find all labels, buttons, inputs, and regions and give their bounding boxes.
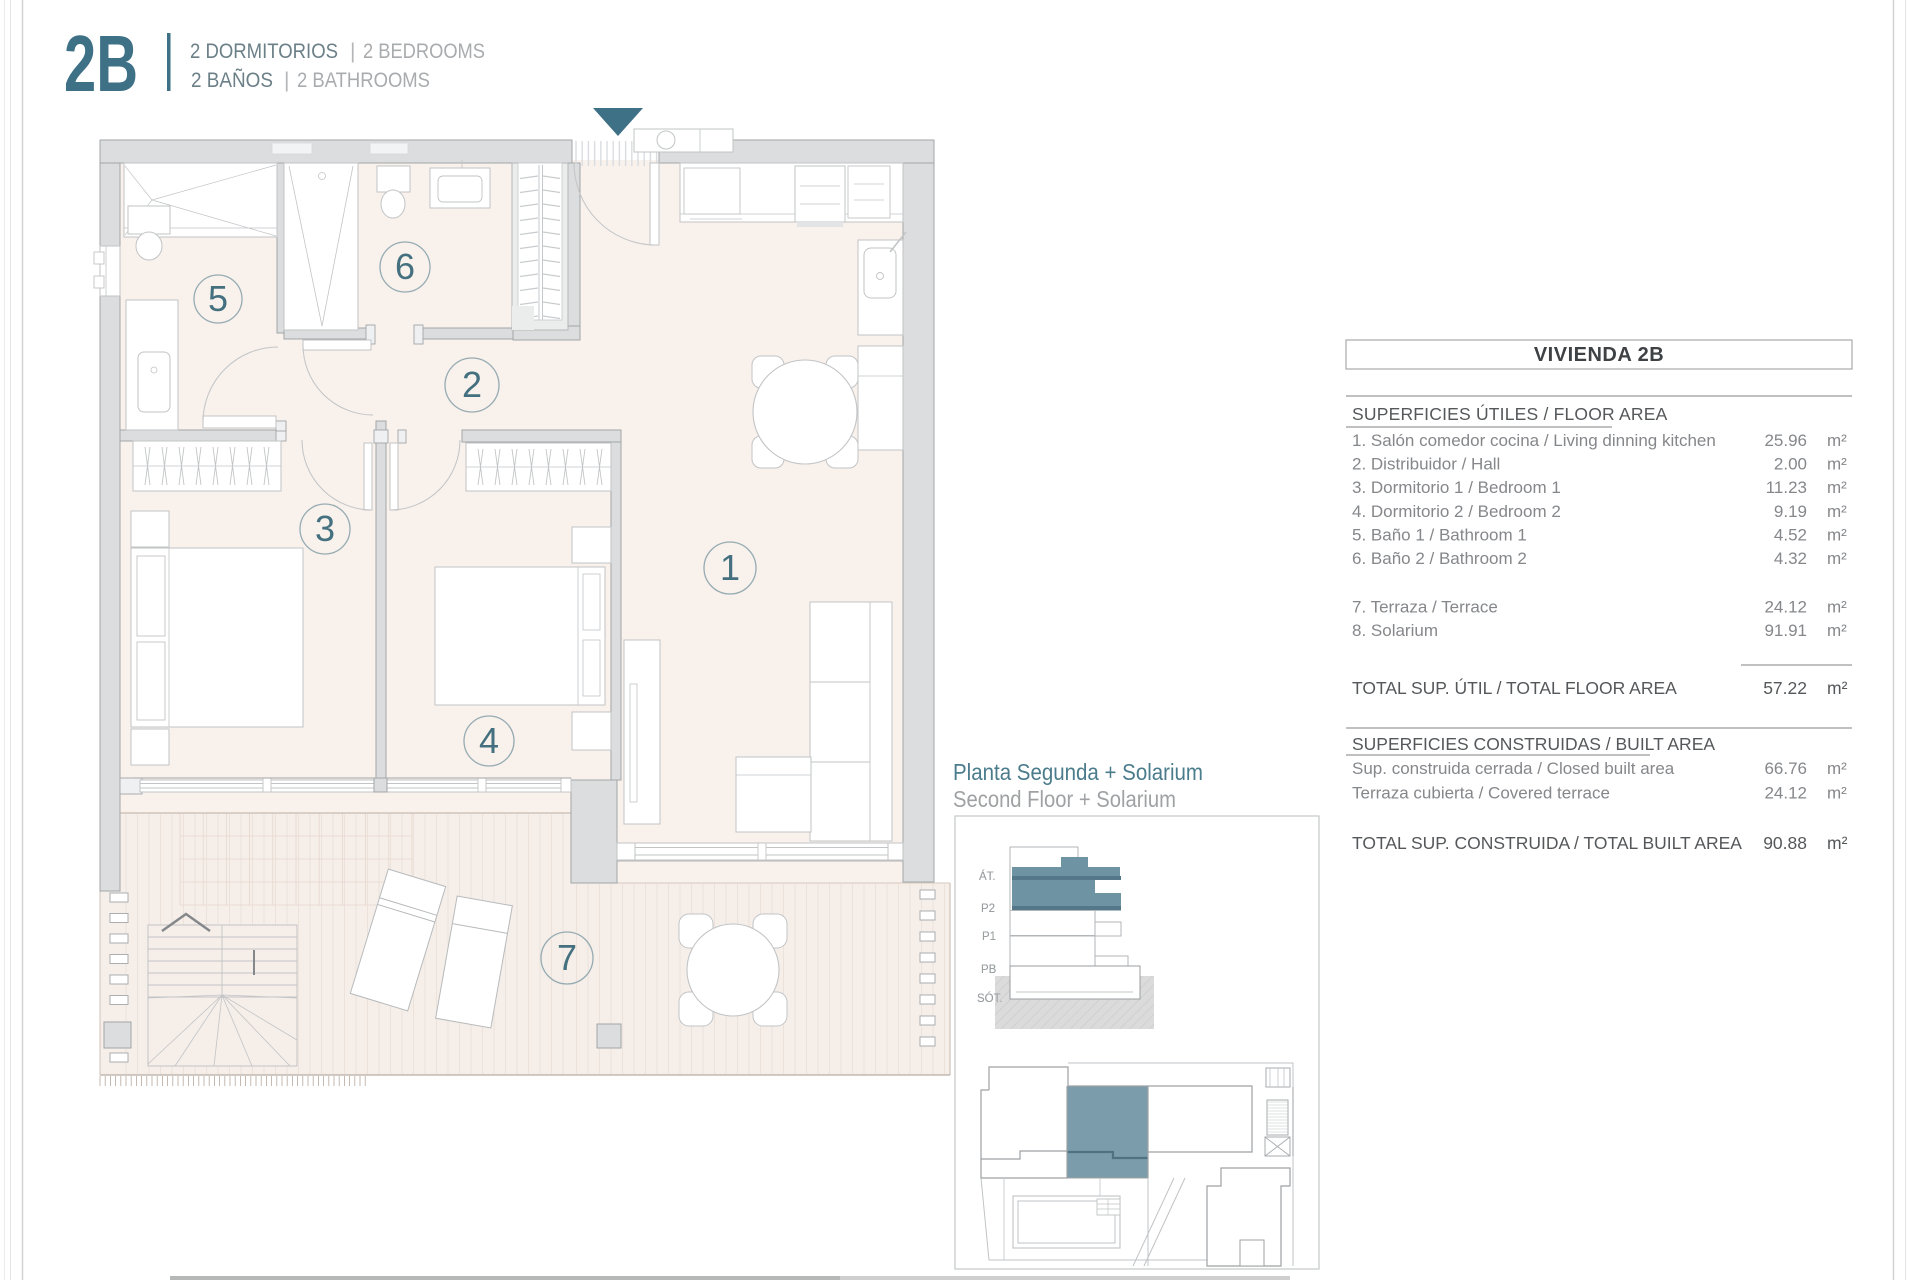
svg-text:5. Baño 1 / Bathroom 1: 5. Baño 1 / Bathroom 1 — [1352, 526, 1527, 545]
svg-text:11.23: 11.23 — [1766, 478, 1807, 497]
svg-text:P1: P1 — [982, 931, 996, 943]
svg-text:2 BATHROOMS: 2 BATHROOMS — [297, 69, 430, 92]
svg-text:8. Solarium: 8. Solarium — [1352, 621, 1438, 640]
svg-text:7: 7 — [557, 937, 577, 978]
svg-text:3: 3 — [315, 508, 335, 549]
svg-text:4. Dormitorio 2 / Bedroom 2: 4. Dormitorio 2 / Bedroom 2 — [1352, 502, 1561, 521]
svg-text:SUPERFICIES ÚTILES / FLOOR ARE: SUPERFICIES ÚTILES / FLOOR AREA — [1352, 403, 1668, 424]
svg-text:2.00: 2.00 — [1774, 455, 1807, 474]
svg-text:7. Terraza / Terrace: 7. Terraza / Terrace — [1352, 598, 1498, 617]
svg-text:2. Distribuidor / Hall: 2. Distribuidor / Hall — [1352, 455, 1500, 474]
svg-text:m²: m² — [1827, 431, 1847, 450]
svg-text:1: 1 — [720, 547, 740, 588]
svg-text:6: 6 — [395, 246, 415, 287]
svg-text:m²: m² — [1827, 759, 1847, 778]
svg-text:m²: m² — [1827, 526, 1847, 545]
svg-text:4.52: 4.52 — [1774, 526, 1807, 545]
svg-text:m²: m² — [1827, 549, 1847, 568]
svg-text:m²: m² — [1827, 678, 1848, 698]
svg-text:m²: m² — [1827, 833, 1848, 853]
svg-text:m²: m² — [1827, 621, 1847, 640]
svg-text:m²: m² — [1827, 502, 1847, 521]
svg-text:4.32: 4.32 — [1774, 549, 1807, 568]
svg-text:2 BEDROOMS: 2 BEDROOMS — [363, 40, 485, 63]
svg-text:SUPERFICIES CONSTRUIDAS / BUIL: SUPERFICIES CONSTRUIDAS / BUILT AREA — [1352, 734, 1715, 754]
svg-text:m²: m² — [1827, 598, 1847, 617]
svg-text:24.12: 24.12 — [1764, 784, 1807, 803]
svg-text:4: 4 — [479, 720, 499, 761]
svg-text:Planta Segunda + Solarium: Planta Segunda + Solarium — [953, 759, 1203, 785]
svg-text:|: | — [350, 40, 355, 63]
svg-text:PB: PB — [981, 964, 997, 976]
svg-text:Sup. construida cerrada / Clos: Sup. construida cerrada / Closed built a… — [1352, 759, 1675, 778]
svg-text:1. Salón comedor cocina / Livi: 1. Salón comedor cocina / Living dinning… — [1352, 431, 1716, 450]
svg-text:9.19: 9.19 — [1774, 502, 1807, 521]
svg-text:2 DORMITORIOS: 2 DORMITORIOS — [190, 40, 338, 63]
svg-text:m²: m² — [1827, 455, 1847, 474]
svg-text:2 BAÑOS: 2 BAÑOS — [191, 68, 273, 92]
svg-text:5: 5 — [208, 278, 228, 319]
svg-text:25.96: 25.96 — [1764, 431, 1807, 450]
svg-text:2: 2 — [462, 364, 482, 405]
svg-text:TOTAL SUP. CONSTRUIDA / TOTAL: TOTAL SUP. CONSTRUIDA / TOTAL BUILT AREA — [1352, 833, 1742, 853]
svg-text:m²: m² — [1827, 478, 1847, 497]
svg-text:2B: 2B — [64, 19, 138, 108]
svg-text:91.91: 91.91 — [1764, 621, 1807, 640]
svg-text:P2: P2 — [981, 903, 995, 915]
svg-text:24.12: 24.12 — [1764, 598, 1807, 617]
svg-text:m²: m² — [1827, 784, 1847, 803]
svg-text:|: | — [284, 69, 289, 92]
svg-text:66.76: 66.76 — [1764, 759, 1807, 778]
svg-text:Second Floor + Solarium: Second Floor + Solarium — [953, 786, 1176, 812]
svg-text:VIVIENDA 2B: VIVIENDA 2B — [1534, 344, 1664, 366]
svg-text:Terraza cubierta / Covered ter: Terraza cubierta / Covered terrace — [1352, 784, 1610, 803]
svg-text:SÓT.: SÓT. — [977, 992, 1003, 1005]
svg-text:3. Dormitorio 1 / Bedroom 1: 3. Dormitorio 1 / Bedroom 1 — [1352, 478, 1561, 497]
svg-text:TOTAL SUP. ÚTIL / TOTAL FLOOR: TOTAL SUP. ÚTIL / TOTAL FLOOR AREA — [1352, 677, 1677, 698]
svg-text:6. Baño 2 / Bathroom 2: 6. Baño 2 / Bathroom 2 — [1352, 549, 1527, 568]
svg-text:90.88: 90.88 — [1763, 833, 1807, 853]
svg-text:57.22: 57.22 — [1763, 678, 1807, 698]
svg-text:ÁT.: ÁT. — [979, 870, 996, 883]
